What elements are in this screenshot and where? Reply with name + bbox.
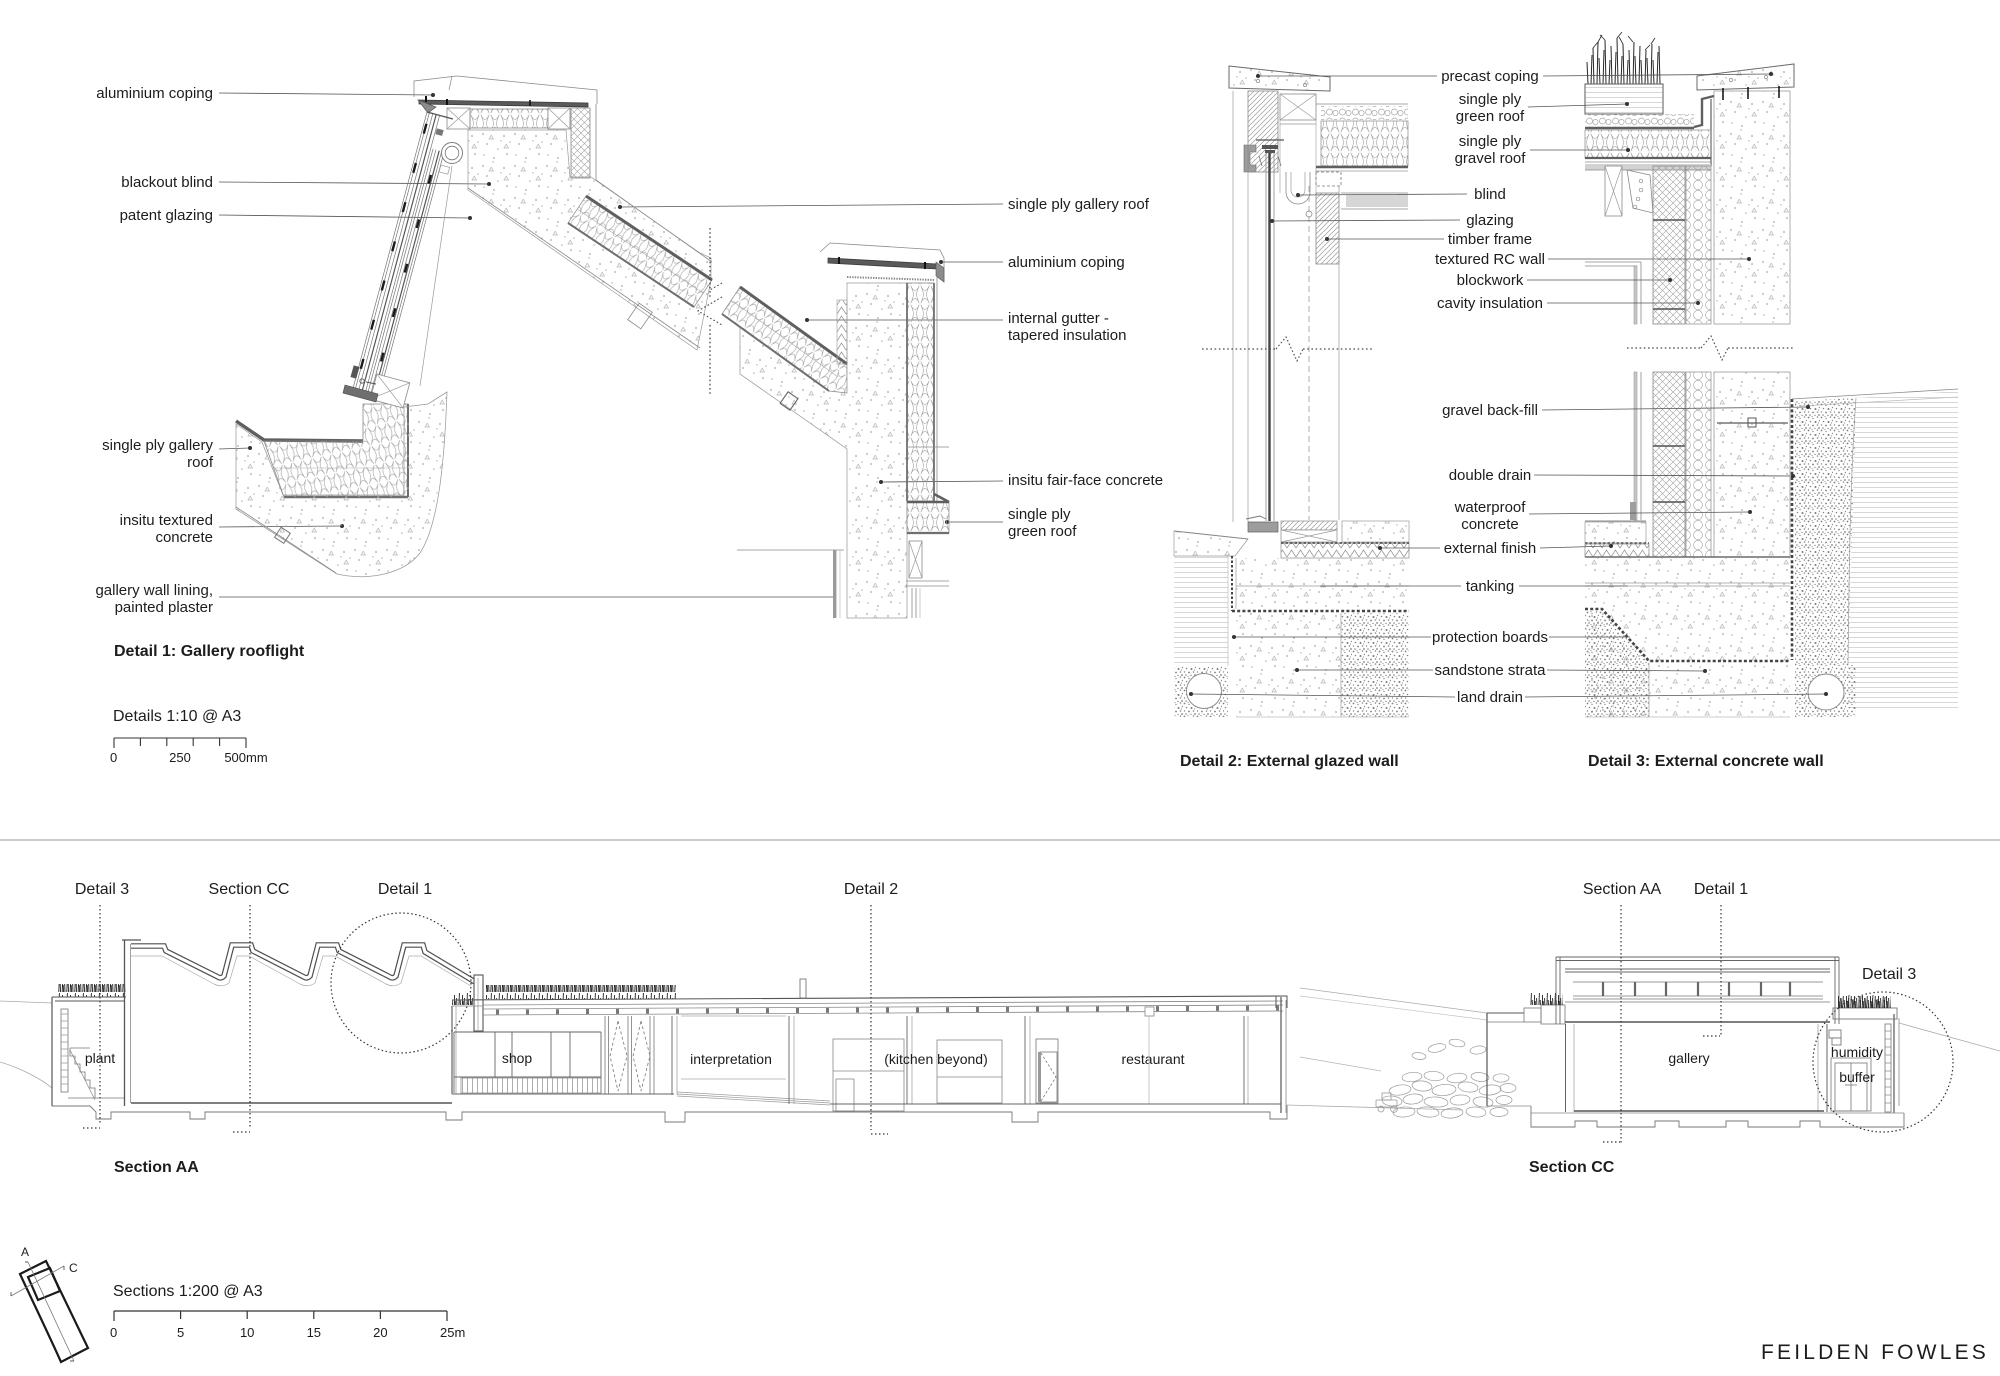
- svg-text:concrete: concrete: [1461, 516, 1519, 533]
- svg-text:250: 250: [169, 750, 191, 765]
- svg-text:sandstone strata: sandstone strata: [1435, 662, 1547, 679]
- svg-text:green roof: green roof: [1008, 523, 1077, 540]
- svg-text:tanking: tanking: [1466, 578, 1514, 595]
- svg-text:A: A: [21, 1245, 29, 1259]
- svg-text:Detail 1: Detail 1: [1694, 881, 1748, 898]
- svg-text:restaurant: restaurant: [1121, 1051, 1184, 1067]
- svg-text:double drain: double drain: [1449, 467, 1532, 484]
- svg-text:0: 0: [110, 750, 117, 765]
- svg-text:internal gutter -: internal gutter -: [1008, 310, 1109, 327]
- svg-text:gallery wall lining,: gallery wall lining,: [95, 582, 213, 599]
- svg-text:(kitchen beyond): (kitchen beyond): [884, 1051, 988, 1067]
- svg-text:500mm: 500mm: [224, 750, 267, 765]
- svg-text:Sections 1:200 @ A3: Sections 1:200 @ A3: [113, 1283, 263, 1300]
- svg-text:land drain: land drain: [1457, 689, 1523, 706]
- svg-text:10: 10: [240, 1325, 254, 1340]
- svg-text:protection boards: protection boards: [1432, 629, 1548, 646]
- svg-text:cavity insulation: cavity insulation: [1437, 295, 1543, 312]
- svg-text:single ply: single ply: [1459, 133, 1522, 150]
- svg-text:interpretation: interpretation: [690, 1051, 772, 1067]
- svg-text:gallery: gallery: [1668, 1050, 1709, 1066]
- svg-text:tapered insulation: tapered insulation: [1008, 327, 1126, 344]
- svg-text:gravel roof: gravel roof: [1455, 150, 1527, 167]
- svg-text:Detail 1: Detail 1: [378, 881, 432, 898]
- svg-text:Detail 3: Detail 3: [75, 881, 129, 898]
- svg-text:25m: 25m: [440, 1325, 465, 1340]
- svg-text:timber frame: timber frame: [1448, 231, 1532, 248]
- svg-text:patent glazing: patent glazing: [120, 207, 213, 224]
- svg-text:gravel back-fill: gravel back-fill: [1442, 402, 1538, 419]
- svg-text:green roof: green roof: [1456, 108, 1525, 125]
- svg-text:glazing: glazing: [1466, 212, 1514, 229]
- svg-text:blind: blind: [1474, 186, 1506, 203]
- svg-text:waterproof: waterproof: [1454, 499, 1527, 516]
- svg-text:15: 15: [307, 1325, 321, 1340]
- svg-text:insitu textured: insitu textured: [120, 512, 213, 529]
- svg-text:Detail 1: Gallery rooflight: Detail 1: Gallery rooflight: [114, 643, 305, 660]
- svg-text:Detail 2: Detail 2: [844, 881, 898, 898]
- svg-text:Detail 2: External glazed wall: Detail 2: External glazed wall: [1180, 753, 1399, 770]
- svg-text:blackout blind: blackout blind: [121, 174, 213, 191]
- svg-text:C: C: [69, 1261, 78, 1275]
- svg-text:single ply gallery: single ply gallery: [102, 437, 213, 454]
- svg-text:aluminium coping: aluminium coping: [1008, 254, 1125, 271]
- svg-text:roof: roof: [187, 454, 214, 471]
- svg-text:aluminium coping: aluminium coping: [96, 85, 213, 102]
- svg-text:external finish: external finish: [1444, 540, 1537, 557]
- svg-text:single ply: single ply: [1008, 506, 1071, 523]
- svg-text:textured RC wall: textured RC wall: [1435, 251, 1545, 268]
- svg-text:Details 1:10 @ A3: Details 1:10 @ A3: [113, 708, 241, 725]
- svg-text:humidity: humidity: [1831, 1044, 1883, 1060]
- svg-text:concrete: concrete: [155, 529, 213, 546]
- svg-text:Section AA: Section AA: [1583, 881, 1662, 898]
- svg-text:5: 5: [177, 1325, 184, 1340]
- svg-text:shop: shop: [502, 1050, 533, 1066]
- svg-text:single ply gallery roof: single ply gallery roof: [1008, 196, 1150, 213]
- svg-text:Detail 3: External concrete wa: Detail 3: External concrete wall: [1588, 753, 1824, 770]
- svg-text:Section CC: Section CC: [209, 881, 290, 898]
- svg-text:FEILDEN FOWLES: FEILDEN FOWLES: [1761, 1341, 1989, 1364]
- svg-text:Detail 3: Detail 3: [1862, 966, 1916, 983]
- svg-text:blockwork: blockwork: [1457, 272, 1524, 289]
- svg-text:0: 0: [110, 1325, 117, 1340]
- svg-text:insitu fair-face concrete: insitu fair-face concrete: [1008, 472, 1163, 489]
- svg-text:precast coping: precast coping: [1441, 68, 1539, 85]
- svg-text:20: 20: [373, 1325, 387, 1340]
- svg-text:painted plaster: painted plaster: [115, 599, 213, 616]
- svg-text:Section CC: Section CC: [1529, 1159, 1615, 1176]
- svg-text:Section AA: Section AA: [114, 1159, 199, 1176]
- svg-text:single ply: single ply: [1459, 91, 1522, 108]
- svg-text:buffer: buffer: [1839, 1069, 1875, 1085]
